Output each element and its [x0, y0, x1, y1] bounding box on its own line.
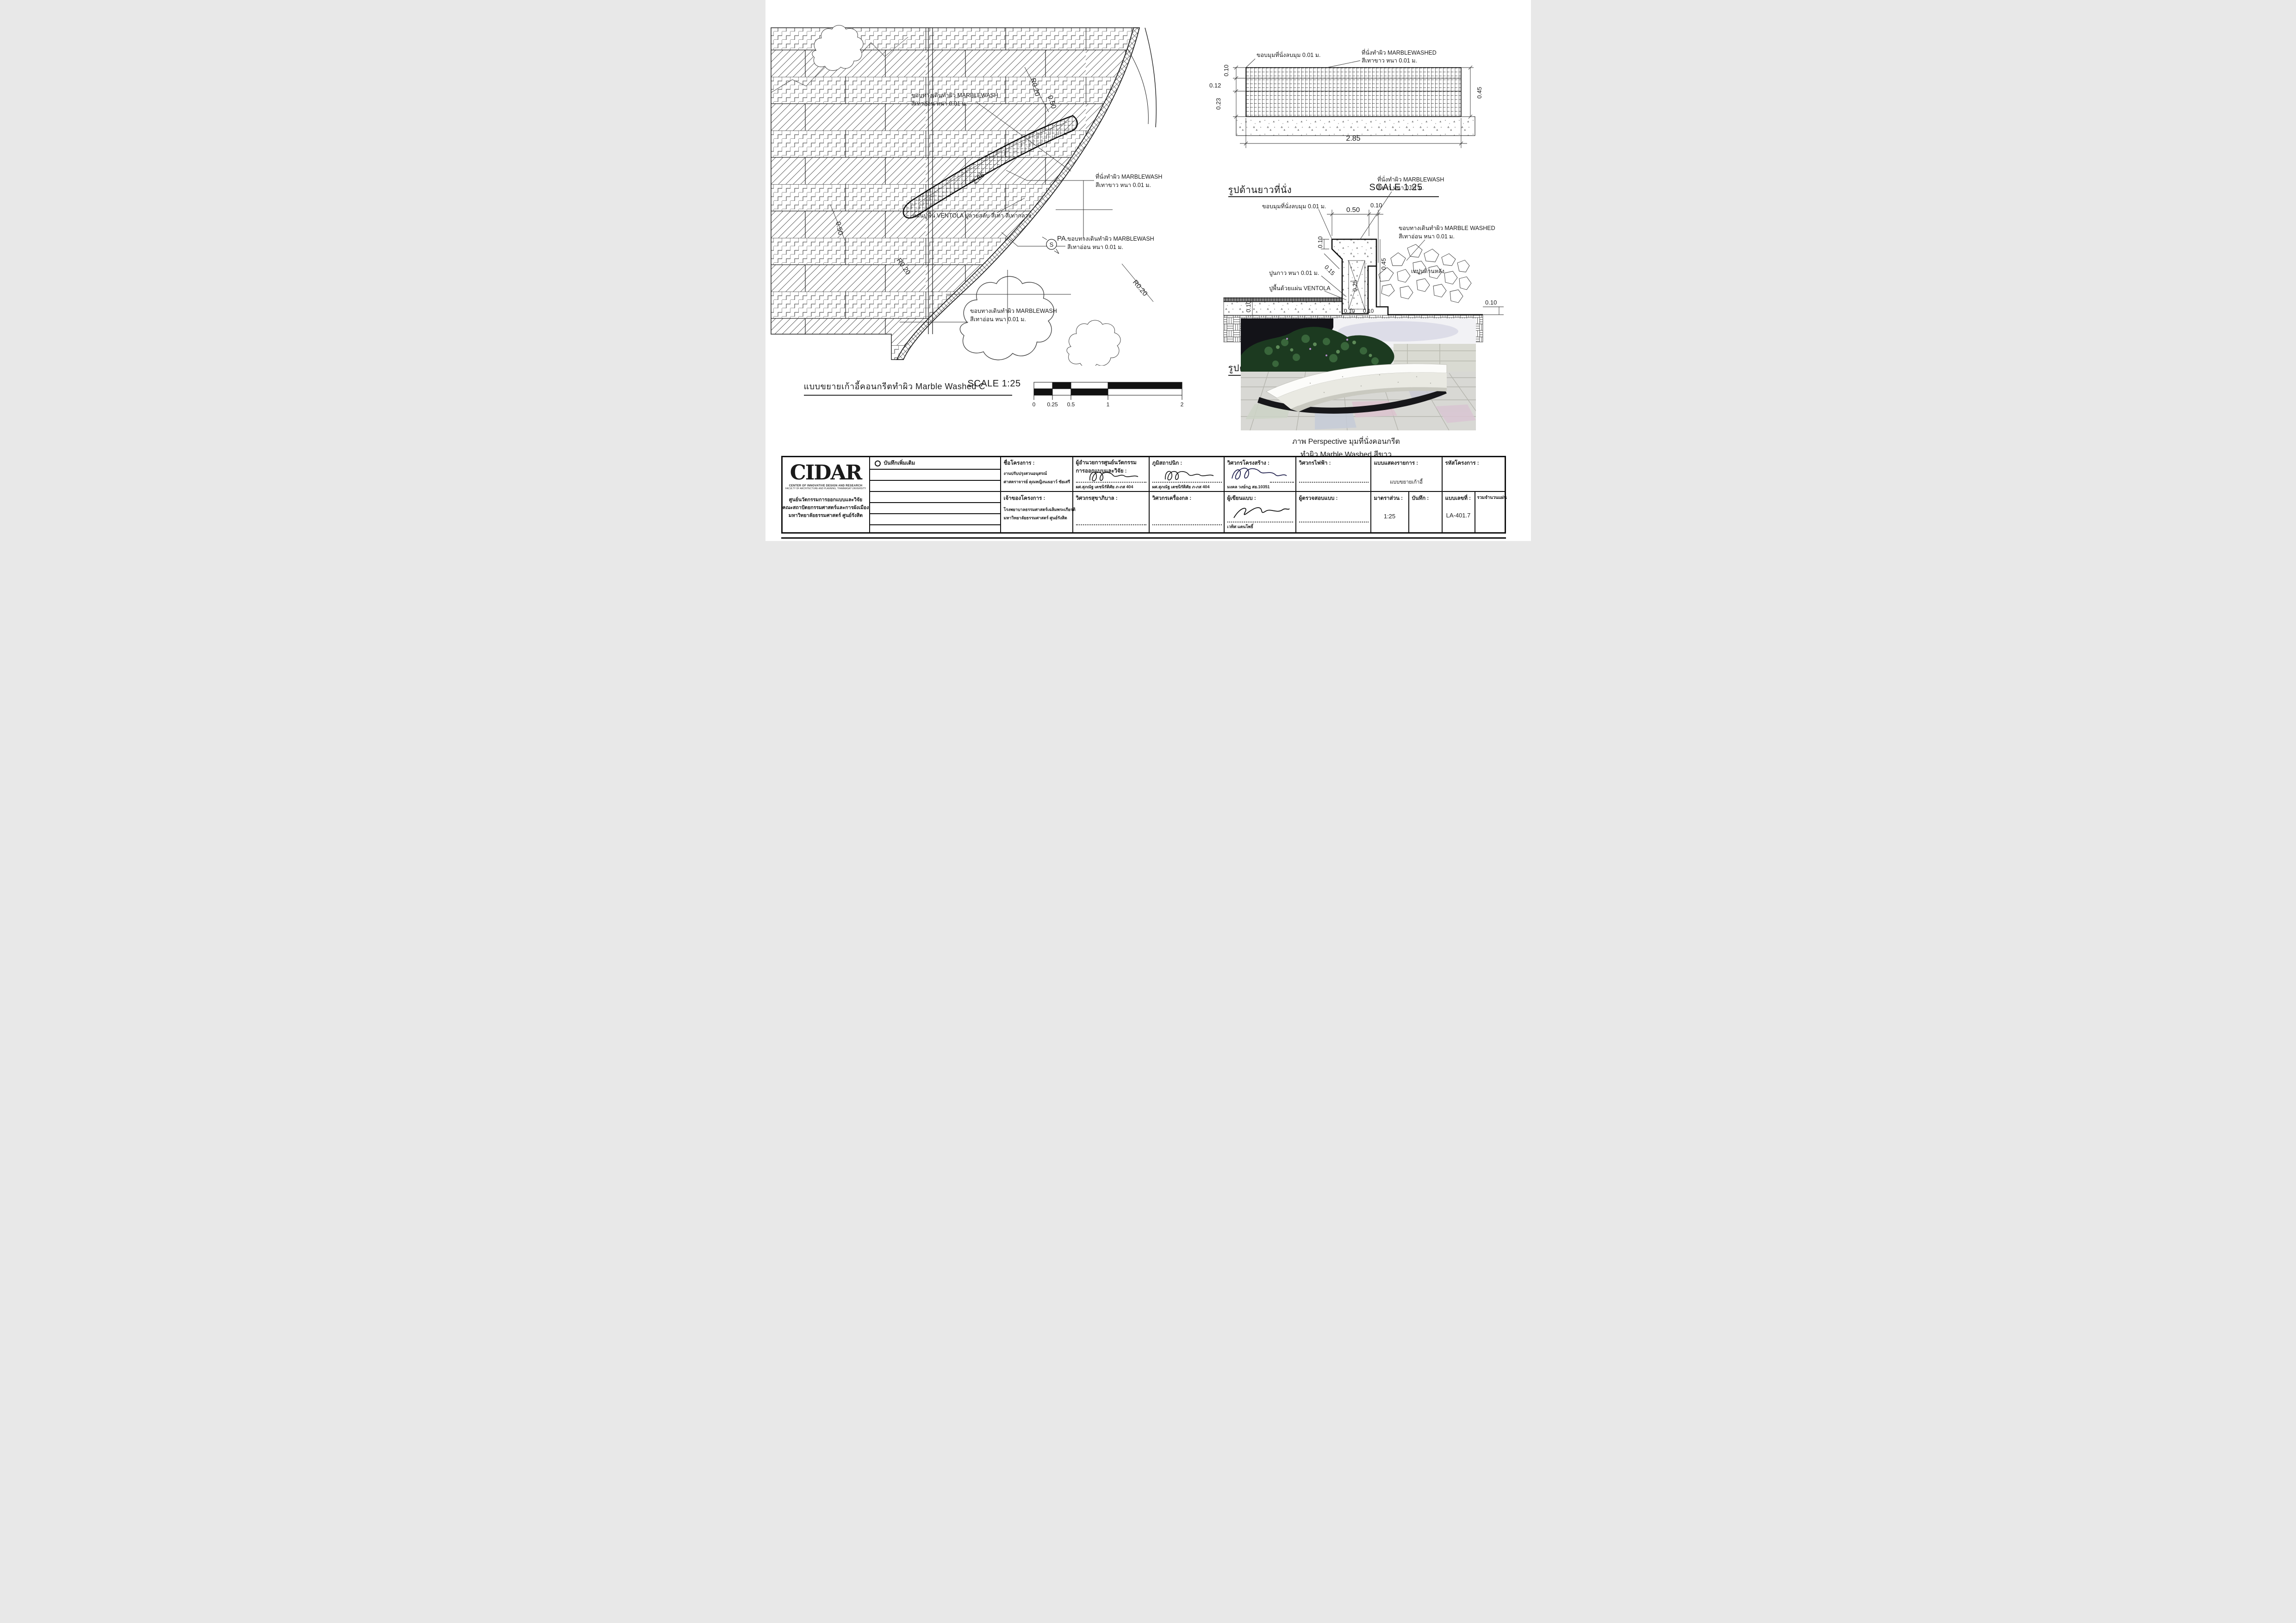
- project-line-2: ศาสตราจารย์ คุณหญิงนงเยาว์ ชัยเสรี: [1004, 479, 1072, 485]
- plan-walk-arc: [1145, 28, 1156, 127]
- elev-label-seat-2: สีเทาขาว หนา 0.01 ม.: [1362, 57, 1417, 64]
- owner-label: เจ้าของโครงการ :: [1004, 494, 1072, 503]
- plan-scale: SCALE 1:25: [968, 379, 1021, 389]
- sect-label-corner: ขอบมุมที่นั่งลบมุม 0.01 ม.: [1262, 202, 1326, 210]
- cidar-logo: CIDAR: [783, 461, 869, 485]
- elev-dim-010: 0.10: [1223, 65, 1230, 76]
- elevation-drawing: 0.12 0.10 0.23 0.45 2.85 ขอบมุมที่นั่งลบ…: [1207, 49, 1508, 157]
- graphic-scale-bar: 0 0.25 0.5 1 2: [1032, 379, 1191, 409]
- scale-cell: มาตราส่วน : 1:25: [1370, 491, 1408, 532]
- sect-dim-010ba: 0.10: [1344, 308, 1355, 314]
- elev-dim-045: 0.45: [1476, 87, 1483, 99]
- sect-dim-025: 0.25: [1351, 280, 1358, 292]
- sect-dim-015: 0.15: [1323, 264, 1336, 277]
- draftsman-name: เวทิศ แตนโพธิ์: [1227, 523, 1253, 530]
- scalebar-tick-0: 0: [1032, 401, 1035, 408]
- sheet-no-cell: แบบเลขที่ : LA-401.7: [1442, 491, 1475, 532]
- plan-cross2: [1056, 180, 1113, 241]
- scalebar-tick-1: 1: [1106, 401, 1109, 408]
- director-cell: ผู้อำนวยการศูนย์นวัตกรรม การออกแบบและวิจ…: [1072, 457, 1149, 491]
- perspective-image: [1241, 318, 1476, 430]
- plan-label-walk-bot-1: ขอบทางเดินทำผิว MARBLEWASH: [970, 308, 1057, 314]
- draftsman-label: ผู้เขียนแบบ :: [1227, 494, 1295, 503]
- elev-label-seat-1: ที่นั่งทำผิว MARBLEWASHED: [1362, 49, 1437, 56]
- title-block: CIDAR CENTER OF INNOVATIVE DESIGN AND RE…: [781, 456, 1506, 534]
- plan-label-walk-top-1: ขอบทางเดินทำผิว MARBLEWASH: [911, 92, 998, 99]
- sanitary-cell: วิศวกรสุขาภิบาล :: [1072, 491, 1149, 532]
- elev-dim-023: 0.23: [1215, 98, 1222, 110]
- landscape-architect-cell: ภูมิสถาปนิก : ผศ.สุภณัฐ เตชนิรัติศัย ภ-ภ…: [1149, 457, 1224, 491]
- sect-dim-050: 0.50: [1346, 206, 1360, 214]
- perspective-caption-1: ภาพ Perspective มุมที่นั่งคอนกรีต: [1249, 436, 1444, 448]
- project-line-1: งานปรับปรุงสวนอนุสรณ์: [1004, 470, 1072, 477]
- sect-dim-010l: 0.10: [1245, 301, 1252, 312]
- drawing-list-value: แบบขยายเก้าอี้: [1371, 478, 1442, 486]
- mechanical-cell: วิศวกรเครื่องกล :: [1149, 491, 1224, 532]
- sect-label-curb-2: สีเทาอ่อน หนา 0.01 ม.: [1399, 233, 1455, 240]
- structural-cell: วิศวกรโครงสร้าง : มงคล วงษ์กฎ สย.10351: [1224, 457, 1295, 491]
- elev-label-corner: ขอบมุมที่นั่งลบมุม 0.01 ม.: [1257, 51, 1320, 59]
- pa-symbol-letter: S: [1049, 241, 1053, 248]
- plan-title: แบบขยายเก้าอี้คอนกรีตทำผิว Marble Washed…: [804, 379, 985, 393]
- sect-dim-045: 0.45: [1380, 258, 1387, 270]
- draftsman-signature: [1231, 502, 1291, 521]
- director-label-1: ผู้อำนวยการศูนย์นวัตกรรม: [1076, 459, 1149, 467]
- scalebar-tick-2: 2: [1180, 401, 1183, 408]
- drawing-list-label: แบบแสดงรายการ :: [1374, 459, 1442, 467]
- sheet-no-label: แบบเลขที่ :: [1445, 494, 1475, 503]
- sect-label-back: เทปูนด้านหลัง: [1411, 268, 1444, 275]
- mechanical-label: วิศวกรเครื่องกล :: [1152, 494, 1224, 503]
- plan-label-walk-top-2: สีเทาอ่อน หนา 0.01 ม.: [911, 100, 967, 107]
- logo-subtitle-2: FACULTY OF ARCHITECTURE AND PLANNING, TH…: [783, 487, 869, 490]
- project-label: ชื่อโครงการ :: [1004, 459, 1072, 467]
- note-label: บันทึก :: [1412, 494, 1442, 503]
- logo-cell: CIDAR CENTER OF INNOVATIVE DESIGN AND RE…: [783, 457, 869, 532]
- sheet-bottom-edge: [781, 537, 1506, 539]
- director-name: ผศ.สุภณัฐ เตชนิรัติศัย ภ-ภส 404: [1076, 484, 1133, 490]
- plan-label-curb-1: ขอบทางเดินทำผิว MARBLEWASH: [1067, 236, 1154, 242]
- note-bullet-icon: [875, 460, 881, 466]
- sect-dim-010s: 0.10: [1317, 236, 1324, 248]
- drawing-list-cell: แบบแสดงรายการ : แบบขยายเก้าอี้: [1370, 457, 1442, 491]
- owner-line-2: มหาวิทยาลัยธรรมศาสตร์ ศูนย์รังสิต: [1004, 515, 1072, 521]
- plan-label-ventola: แผ่นปูพื้น VENTOLA ปูลายสลับ สีเทา สีเทา…: [913, 211, 1031, 219]
- plan-title-underline: [804, 395, 1012, 396]
- sheet-no-value: LA-401.7: [1443, 512, 1475, 519]
- sect-label-curb-1: ขอบทางเดินทำผิว MARBLE WASHED: [1399, 225, 1495, 231]
- sect-label-seat-1: ที่นั่งทำผิว MARBLEWASH: [1377, 175, 1444, 183]
- scale-label: มาตราส่วน :: [1374, 494, 1408, 503]
- sect-label-floor: ปูพื้นด้วยแผ่น VENTOLA: [1269, 284, 1331, 292]
- total-sheets-label: รวมจำนวนแผ่น: [1477, 494, 1506, 501]
- checker-cell: ผู้ตรวจสอบแบบ :: [1295, 491, 1370, 532]
- plan-walk-arc2: [1127, 49, 1148, 124]
- owner-cell: เจ้าของโครงการ : โรงพยาบาลธรรมศาสตร์เฉลิ…: [1000, 491, 1072, 532]
- drawing-sheet: S PA. ขอบทางเดินทำผิว MARBLEWASH สีเทาอ่…: [765, 0, 1531, 541]
- pa-label: PA.: [1057, 235, 1068, 243]
- plan-label-seat-1: ที่นั่งทำผิว MARBLEWASH: [1095, 173, 1162, 180]
- org-thai-2: คณะสถาปัตยกรรมศาสตร์และการผังเมือง: [783, 504, 869, 511]
- elev-dim-285: 2.85: [1346, 135, 1360, 143]
- total-sheets-cell: รวมจำนวนแผ่น: [1475, 491, 1506, 532]
- note-cell: บันทึก :: [1408, 491, 1442, 532]
- tree-canopy-icon: [1067, 320, 1120, 366]
- electrical-cell: วิศวกรไฟฟ้า :: [1295, 457, 1370, 491]
- plan-drawing: S PA. ขอบทางเดินทำผิว MARBLEWASH สีเทาอ่…: [765, 23, 1182, 366]
- org-thai-1: ศูนย์นวัตกรรมการออกแบบและวิจัย: [783, 496, 869, 504]
- plan-label-curb-2: สีเทาอ่อน หนา 0.01 ม.: [1067, 244, 1123, 250]
- org-thai-3: มหาวิทยาลัยธรรมศาสตร์ ศูนย์รังสิต: [783, 511, 869, 519]
- project-cell: ชื่อโครงการ : งานปรับปรุงสวนอนุสรณ์ ศาสต…: [1000, 457, 1072, 491]
- structural-signature: [1229, 465, 1289, 482]
- sect-dim-010t: 0.10: [1370, 202, 1382, 209]
- plan-dim-r020b: R0.20: [1131, 279, 1149, 298]
- project-code-label: รหัสโครงการ :: [1445, 459, 1506, 467]
- structural-name: มงคล วงษ์กฎ สย.10351: [1227, 484, 1270, 490]
- plan-label-seat-2: สีเทาขาว หนา 0.01 ม.: [1095, 182, 1151, 188]
- plan-label-walk-bot-2: สีเทาอ่อน หนา 0.01 ม.: [970, 316, 1026, 323]
- sect-dim-010bb: 0.10: [1363, 308, 1374, 314]
- landscape-name: ผศ.สุภณัฐ เตชนิรัติศัย ภ-ภส 404: [1152, 484, 1210, 490]
- landscape-signature: [1162, 466, 1217, 482]
- notes-cell: บันทึกเพิ่มเติม: [869, 457, 1000, 532]
- director-signature: [1086, 467, 1142, 483]
- sect-label-seat-2: สีขาว หนา 0.01 ม.: [1377, 185, 1424, 191]
- scalebar-tick-05: 0.5: [1067, 401, 1075, 408]
- owner-line-1: โรงพยาบาลธรรมศาสตร์เฉลิมพระเกียรติ: [1004, 506, 1072, 513]
- notes-label: บันทึกเพิ่มเติม: [884, 459, 915, 467]
- elev-dim-012: 0.12: [1209, 82, 1221, 89]
- sanitary-label: วิศวกรสุขาภิบาล :: [1076, 494, 1149, 503]
- scale-value: 1:25: [1371, 513, 1408, 520]
- project-code-cell: รหัสโครงการ :: [1442, 457, 1506, 491]
- sect-dim-010r: 0.10: [1485, 299, 1497, 306]
- draftsman-cell: ผู้เขียนแบบ : เวทิศ แตนโพธิ์: [1224, 491, 1295, 532]
- sect-label-glue: ปูนกาว หนา 0.01 ม.: [1269, 270, 1319, 277]
- electrical-label: วิศวกรไฟฟ้า :: [1299, 459, 1370, 467]
- scalebar-tick-025: 0.25: [1047, 401, 1058, 408]
- checker-label: ผู้ตรวจสอบแบบ :: [1299, 494, 1370, 503]
